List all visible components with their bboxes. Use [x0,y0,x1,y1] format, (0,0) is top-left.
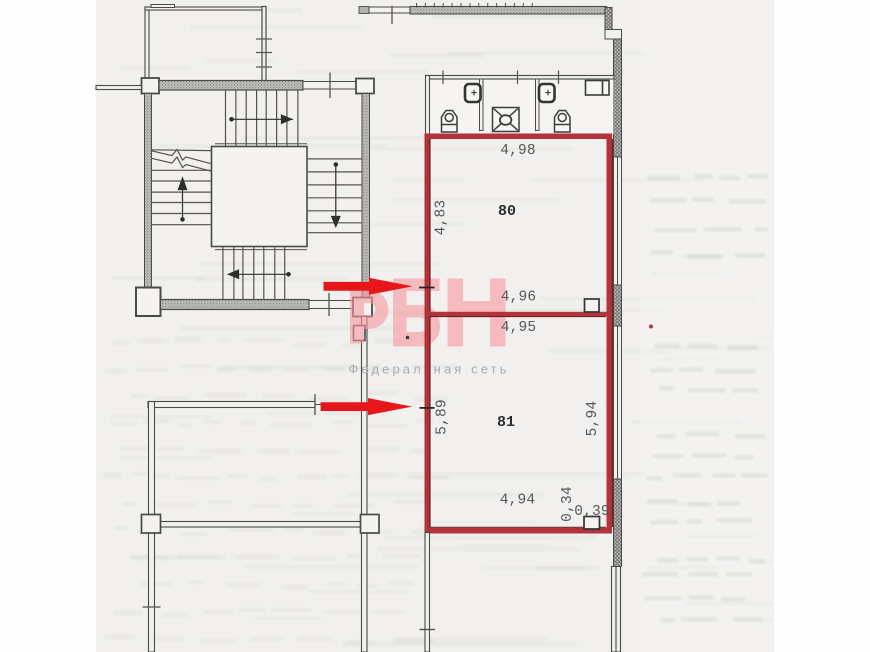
svg-text:4,95: 4,95 [501,320,537,336]
svg-text:4,83: 4,83 [434,200,450,236]
svg-text:4,96: 4,96 [501,290,537,306]
svg-text:80: 80 [498,203,516,220]
svg-text:5,89: 5,89 [435,399,451,435]
svg-text:0,39: 0,39 [574,504,610,520]
svg-text:4,94: 4,94 [500,493,536,509]
svg-text:81: 81 [497,414,515,431]
svg-text:5,94: 5,94 [585,401,601,437]
svg-text:4,98: 4,98 [500,143,536,159]
